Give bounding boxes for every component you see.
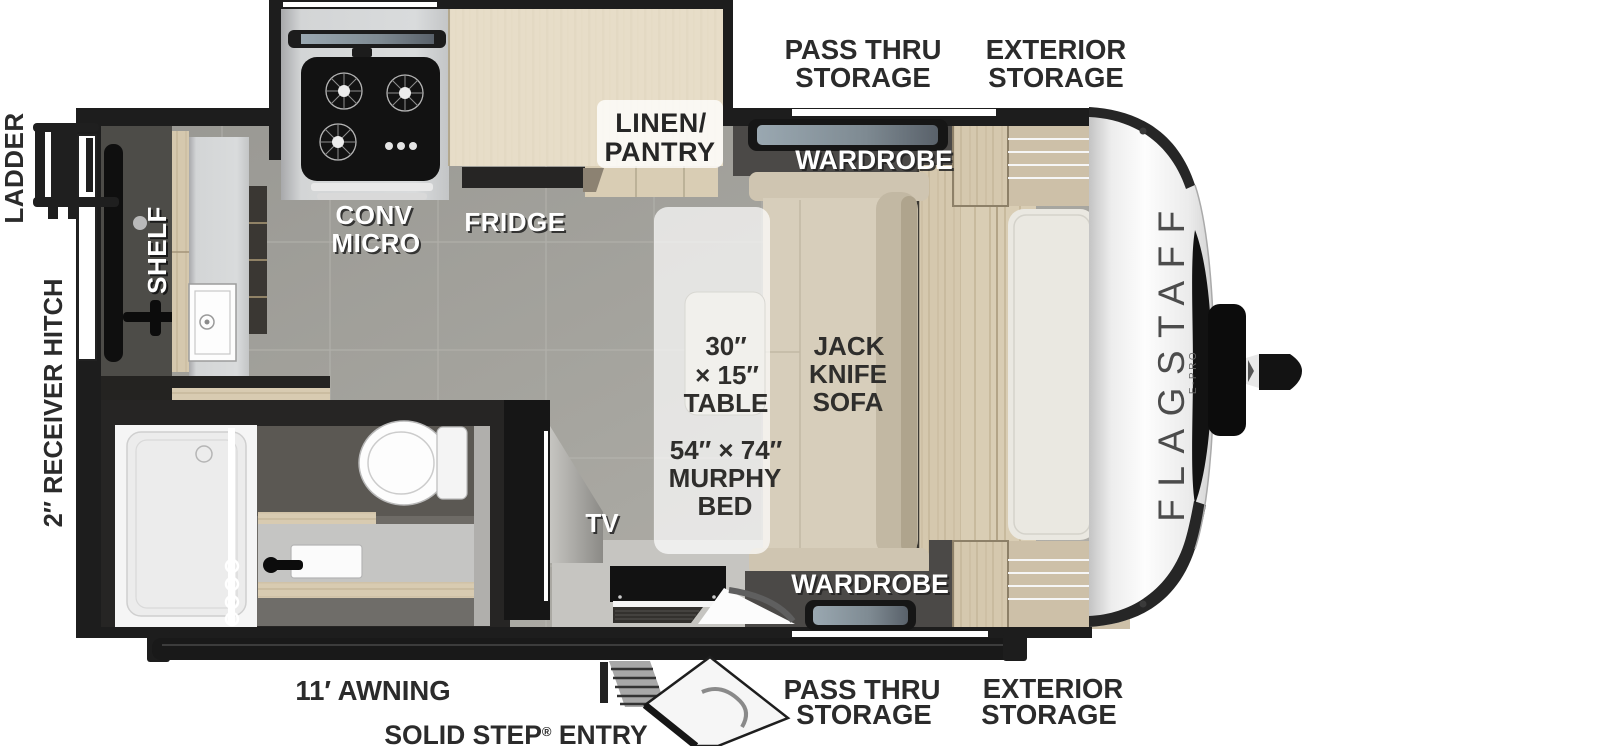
svg-text:BED: BED bbox=[698, 491, 753, 521]
svg-text:SHELF: SHELF bbox=[142, 206, 172, 294]
svg-text:30″: 30″ bbox=[705, 331, 746, 361]
svg-text:PASS THRU: PASS THRU bbox=[785, 34, 942, 65]
svg-text:KNIFE: KNIFE bbox=[809, 359, 887, 389]
svg-text:E-PRO: E-PRO bbox=[1188, 350, 1199, 394]
svg-text:11′ AWNING: 11′ AWNING bbox=[295, 675, 450, 706]
svg-text:CONV: CONV bbox=[335, 200, 412, 230]
svg-text:STORAGE: STORAGE bbox=[981, 699, 1117, 730]
svg-text:FRIDGE: FRIDGE bbox=[464, 207, 565, 237]
svg-text:TABLE: TABLE bbox=[684, 388, 769, 418]
svg-text:STORAGE: STORAGE bbox=[795, 62, 931, 93]
svg-text:2″ RECEIVER HITCH: 2″ RECEIVER HITCH bbox=[40, 279, 68, 528]
svg-text:PANTRY: PANTRY bbox=[605, 137, 716, 167]
svg-text:MICRO: MICRO bbox=[331, 228, 420, 258]
svg-text:LINEN/: LINEN/ bbox=[615, 108, 707, 138]
svg-text:JACK: JACK bbox=[814, 331, 885, 361]
svg-text:WARDROBE: WARDROBE bbox=[795, 145, 953, 175]
svg-text:EXTERIOR: EXTERIOR bbox=[986, 34, 1127, 65]
svg-text:SOFA: SOFA bbox=[813, 387, 884, 417]
svg-text:MURPHY: MURPHY bbox=[669, 463, 782, 493]
svg-text:54″ × 74″: 54″ × 74″ bbox=[670, 435, 782, 465]
svg-text:LADDER: LADDER bbox=[0, 112, 29, 223]
svg-text:FLAGSTAFF: FLAGSTAFF bbox=[1151, 198, 1192, 522]
svg-text:× 15″: × 15″ bbox=[695, 360, 759, 390]
svg-text:TV: TV bbox=[585, 508, 619, 538]
svg-text:WARDROBE: WARDROBE bbox=[791, 569, 949, 599]
svg-text:SOLID STEP® ENTRY: SOLID STEP® ENTRY bbox=[384, 720, 648, 746]
svg-text:STORAGE: STORAGE bbox=[988, 62, 1124, 93]
svg-text:STORAGE: STORAGE bbox=[796, 699, 932, 730]
